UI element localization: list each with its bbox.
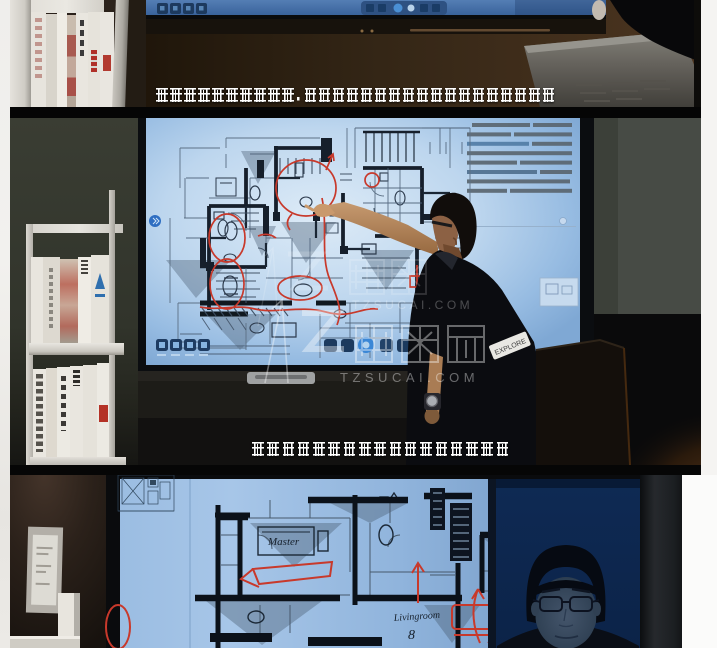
svg-text:Master: Master [267,536,300,548]
svg-text:TZSUCAI.COM: TZSUCAI.COM [340,370,479,385]
svg-text:TZSUCAI.COM: TZSUCAI.COM [352,298,473,312]
svg-text:8: 8 [408,628,415,643]
